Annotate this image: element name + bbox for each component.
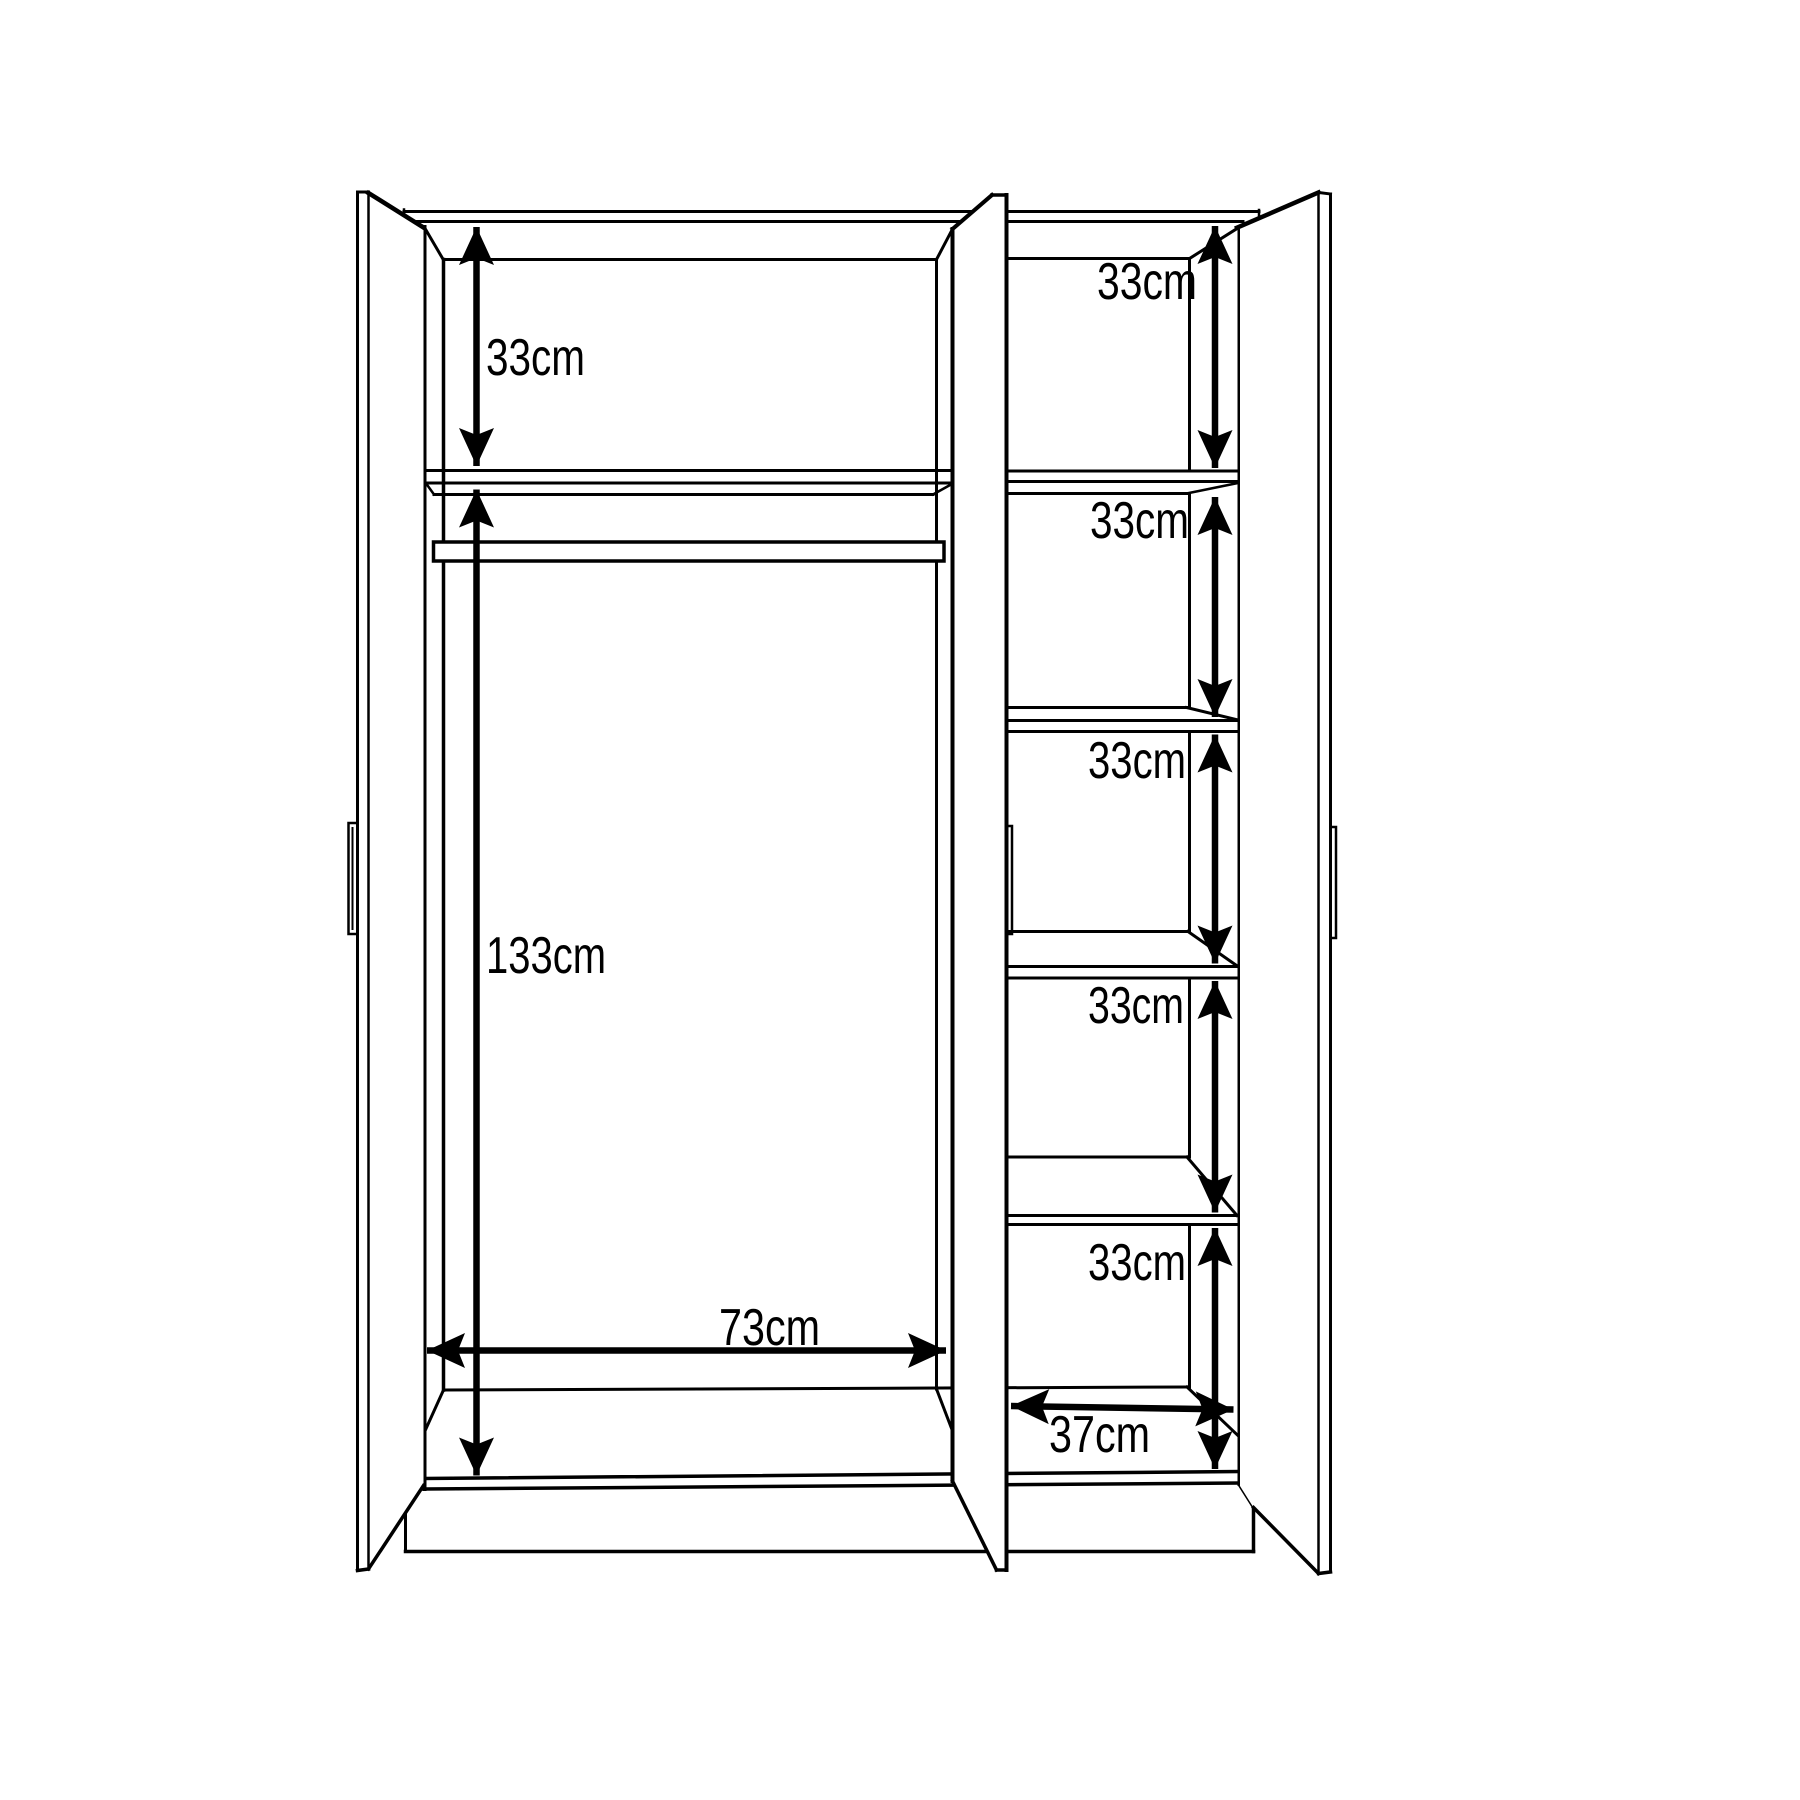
svg-text:33cm: 33cm [1088, 732, 1186, 790]
svg-text:37cm: 37cm [1049, 1406, 1150, 1464]
svg-text:33cm: 33cm [1090, 492, 1189, 550]
svg-text:133cm: 133cm [486, 927, 606, 985]
svg-text:33cm: 33cm [486, 329, 585, 387]
svg-text:33cm: 33cm [1097, 253, 1197, 311]
svg-text:73cm: 73cm [719, 1299, 820, 1357]
svg-text:33cm: 33cm [1088, 977, 1184, 1035]
svg-text:33cm: 33cm [1088, 1234, 1186, 1292]
